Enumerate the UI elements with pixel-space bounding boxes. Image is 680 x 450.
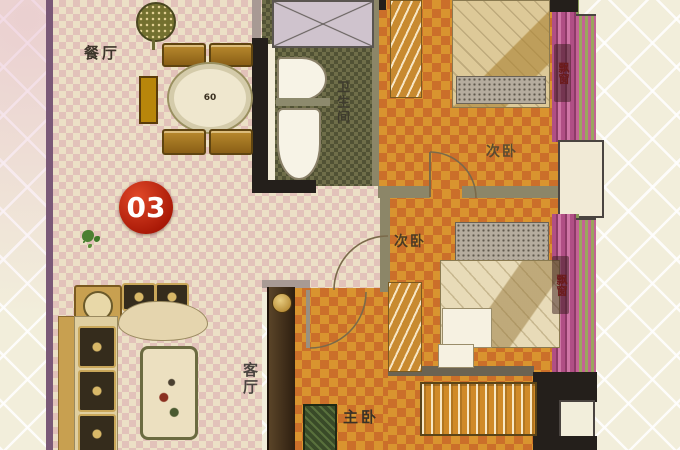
wall-bottom-right-notch	[559, 400, 595, 440]
shutter-mid-bedroom	[388, 282, 422, 372]
wall-bottom-right-c	[559, 436, 597, 450]
dining-cabinet	[139, 76, 158, 124]
wreath-stem	[152, 40, 155, 50]
coffee-table-rug	[140, 346, 198, 440]
wardrobe-master	[420, 382, 537, 436]
sofa-cushion-1	[78, 326, 116, 368]
wall-bathroom-top-left	[252, 0, 261, 42]
wall-left-outer	[46, 0, 53, 450]
bed-top-pillows	[456, 76, 546, 104]
bedroom-top-label: 次卧	[486, 141, 518, 161]
nightstand-mid	[438, 344, 474, 368]
living-label: 客厅	[240, 362, 261, 418]
dining-chair-bottom-right	[209, 129, 253, 155]
wall-bathroom-bottom	[252, 180, 316, 193]
bay-window-mid-label: 飘窗	[552, 256, 569, 314]
bay-window-top-label: 飘窗	[554, 44, 571, 102]
sofa-cushion-3	[78, 414, 116, 450]
bed-mid-pillows	[455, 222, 549, 262]
wall-step-outcrop	[558, 140, 604, 218]
dining-table-marking: 60	[204, 93, 217, 103]
tv-knob-icon	[272, 293, 292, 313]
wall-bathroom-inner-edge	[268, 44, 275, 186]
bathroom-label: 卫生间	[332, 80, 351, 160]
bay-window-top	[576, 14, 596, 144]
air-shaft	[272, 0, 374, 48]
floorplan-image: 卫生间 餐厅 60 03 次卧 飘窗 次卧 飘窗 主卧 客厅	[0, 0, 680, 450]
wall-top-bedroom-b	[462, 186, 562, 198]
chaise-sofa	[118, 301, 208, 341]
floor-corridor	[262, 182, 388, 292]
master-plant-stool	[303, 404, 337, 450]
master-door-leaf	[306, 290, 310, 348]
bay-window-middle	[576, 218, 596, 376]
dining-label: 餐厅	[84, 42, 120, 63]
sink-icon	[277, 108, 321, 180]
toilet-icon	[277, 57, 327, 101]
unit-badge: 03	[119, 181, 173, 234]
wall-corridor-right	[380, 196, 390, 292]
unit-badge-number: 03	[127, 191, 166, 224]
master-label: 主卧	[343, 406, 379, 427]
wall-cap-top-right	[548, 0, 578, 12]
wardrobe-top-bedroom	[390, 0, 422, 98]
wreath-plant-icon	[136, 2, 176, 42]
wall-bottom-right-a	[533, 372, 597, 402]
dining-chair-bottom-left	[162, 129, 206, 155]
bed-mid-sheet	[442, 308, 492, 348]
sofa-cushion-2	[78, 370, 116, 412]
dining-table: 60	[167, 62, 253, 134]
bathroom-shelf	[276, 98, 330, 106]
wall-bathroom-left	[252, 38, 268, 192]
bedroom-mid-label: 次卧	[394, 231, 426, 251]
